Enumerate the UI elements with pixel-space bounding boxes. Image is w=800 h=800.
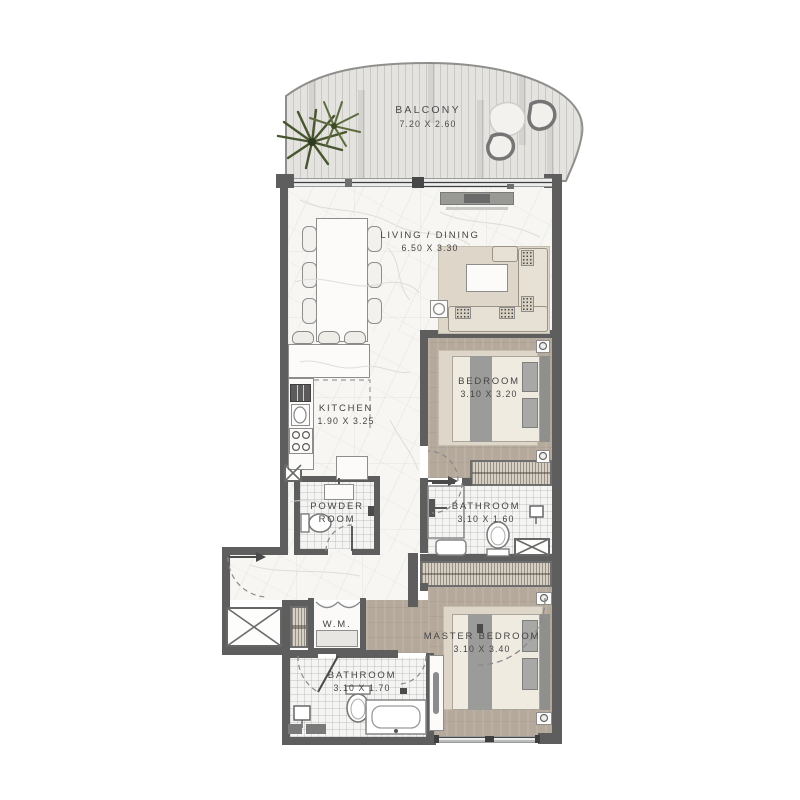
pillow xyxy=(522,362,538,392)
sliding-glass-door xyxy=(294,178,552,187)
room-dims: 3.10 X 1.60 xyxy=(452,513,521,525)
wall xyxy=(336,650,398,658)
wall xyxy=(462,478,472,486)
dining-chair xyxy=(302,262,317,288)
nightstand xyxy=(536,450,550,463)
wall xyxy=(420,338,428,446)
balcony-furniture xyxy=(488,102,555,159)
laundry-label: W.M. xyxy=(323,618,352,631)
service-shaft xyxy=(514,538,550,556)
room-dims: 3.10 X 3.40 xyxy=(424,643,541,655)
dining-chair xyxy=(367,298,382,324)
wall xyxy=(282,600,290,655)
room-dims: 3.10 X 3.20 xyxy=(458,388,520,400)
room-name: MASTER BEDROOM xyxy=(424,630,541,643)
room-name: BATHROOM xyxy=(452,500,521,513)
wall xyxy=(552,174,562,744)
fridge xyxy=(290,384,311,402)
nightstand xyxy=(536,712,552,725)
sofa xyxy=(492,246,518,262)
master-window xyxy=(434,736,540,743)
kitchen-bar-counter xyxy=(288,344,370,378)
pillow xyxy=(522,398,538,428)
bed-runner xyxy=(468,614,492,710)
nightstand xyxy=(536,592,552,605)
wall xyxy=(420,478,428,553)
wall xyxy=(282,737,436,745)
wall xyxy=(282,655,290,745)
wall xyxy=(288,600,312,606)
dining-table xyxy=(316,218,368,342)
powder-room-label: POWDER ROOM xyxy=(310,500,364,527)
kitchen-label: KITCHEN 1.90 X 3.25 xyxy=(317,402,374,428)
pillow xyxy=(522,658,538,690)
palm-plant-icon xyxy=(278,102,360,168)
headboard xyxy=(540,356,550,442)
wall xyxy=(352,549,380,555)
bar-stool xyxy=(318,331,340,344)
wardrobe xyxy=(420,561,552,587)
powder-sink xyxy=(324,484,354,500)
kitchen-sink xyxy=(291,404,310,426)
wall xyxy=(222,547,288,555)
entry-closet xyxy=(226,607,282,647)
living-dining-label: LIVING / DINING 6.50 X 3.30 xyxy=(380,229,479,255)
room-name: W.M. xyxy=(323,618,352,631)
nightstand xyxy=(536,340,550,353)
bar-stool xyxy=(344,331,366,344)
room-name: ROOM xyxy=(310,513,364,526)
master-bathroom-label: BATHROOM 3.10 X 1.70 xyxy=(328,669,397,695)
room-dims: 6.50 X 3.30 xyxy=(380,242,479,254)
cushion xyxy=(499,307,515,319)
cushion xyxy=(521,296,534,312)
headboard xyxy=(540,614,550,710)
cushion xyxy=(455,307,471,319)
wall xyxy=(294,549,328,555)
balcony-label: BALCONY 7.20 X 2.60 xyxy=(395,103,461,130)
kitchen-cabinet xyxy=(336,456,368,480)
wall xyxy=(538,733,562,744)
room-name: BEDROOM xyxy=(458,375,520,388)
wall xyxy=(280,186,288,553)
entry-corridor-floor xyxy=(230,553,408,600)
wall xyxy=(222,647,290,655)
wall xyxy=(360,598,366,654)
room-name: LIVING / DINING xyxy=(380,229,479,242)
stove xyxy=(289,428,313,454)
dining-chair xyxy=(367,262,382,288)
room-name: POWDER xyxy=(310,500,364,513)
dining-chair xyxy=(302,298,317,324)
side-table xyxy=(430,300,448,318)
room-name: BALCONY xyxy=(395,103,461,118)
wall xyxy=(420,583,428,591)
balcony-chair xyxy=(529,102,555,130)
linen-closet xyxy=(290,606,308,648)
wall xyxy=(374,476,380,555)
room-dims: 3.10 X 1.70 xyxy=(328,682,397,694)
master-vestibule-floor xyxy=(366,600,428,653)
washing-machine xyxy=(316,630,358,647)
bedroom-label: BEDROOM 3.10 X 3.20 xyxy=(458,375,520,401)
floor-plan: BALCONY 7.20 X 2.60 LIVING / DINING 6.50… xyxy=(0,0,800,800)
coffee-table xyxy=(466,264,508,292)
dining-chair xyxy=(302,226,317,252)
bathroom-label: BATHROOM 3.10 X 1.60 xyxy=(452,500,521,526)
wardrobe xyxy=(470,460,552,486)
tv-shelf xyxy=(446,207,508,210)
balcony-table xyxy=(490,103,525,136)
tv-icon xyxy=(464,194,490,203)
wall xyxy=(408,553,418,607)
room-name: BATHROOM xyxy=(328,669,397,682)
wall xyxy=(294,476,300,555)
balcony-chair xyxy=(488,134,514,159)
room-name: KITCHEN xyxy=(317,402,374,415)
master-bedroom-label: MASTER BEDROOM 3.10 X 3.40 xyxy=(424,630,541,656)
room-dims: 1.90 X 3.25 xyxy=(317,415,374,427)
tv-icon xyxy=(433,672,439,714)
room-dims: 7.20 X 2.60 xyxy=(395,118,461,130)
wall xyxy=(282,650,318,658)
bar-stool xyxy=(292,331,314,344)
cushion xyxy=(521,250,534,266)
